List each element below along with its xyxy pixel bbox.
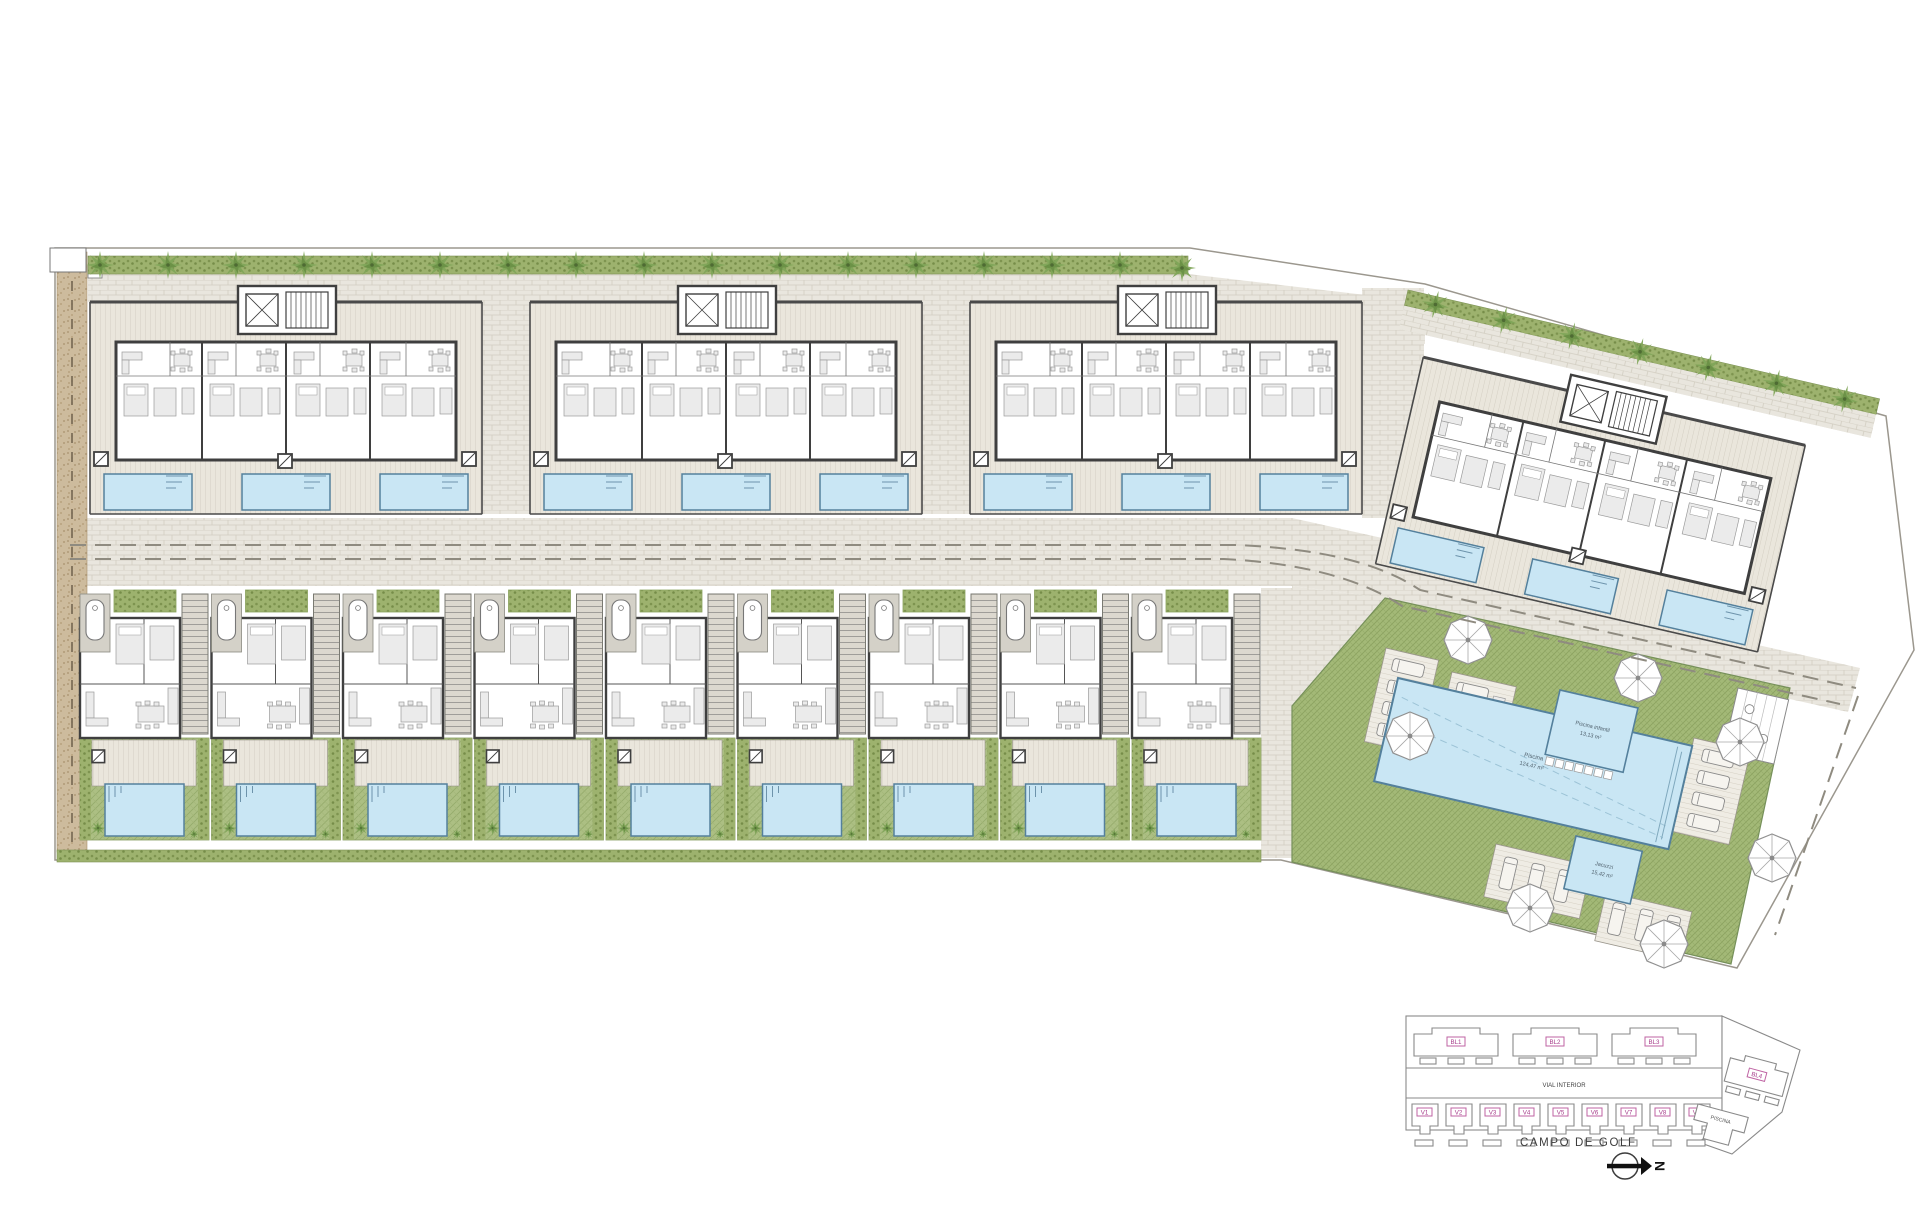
villa-v1 (80, 590, 209, 840)
key-bl3-label: BL3 (1648, 1039, 1660, 1046)
villa-v8 (1001, 590, 1130, 840)
utility-box (50, 248, 86, 272)
villa-row (57, 590, 1261, 862)
campo-de-golf-label: CAMPO DE GOLF (1520, 1137, 1637, 1149)
villa-v6 (738, 590, 867, 840)
block-bl2 (530, 286, 922, 514)
villa-v7 (869, 590, 998, 840)
key-v8: V8 (1659, 1110, 1667, 1117)
key-bl1-label: BL1 (1450, 1039, 1462, 1046)
floor-plan-canvas: Piscina 124,47 m² Piscina infantil 13,13… (0, 0, 1920, 1224)
key-v6: V6 (1591, 1110, 1599, 1117)
site-plan-page: Piscina 124,47 m² Piscina infantil 13,13… (0, 0, 1920, 1224)
key-plan: BL1 BL2 BL3 VIAL INTERIOR V1 V2 V3 V4 V5… (1406, 1016, 1800, 1179)
north-label: N (1652, 1161, 1668, 1171)
key-v5: V5 (1557, 1110, 1565, 1117)
key-v2: V2 (1455, 1110, 1463, 1117)
block-bl3 (970, 286, 1362, 514)
key-v7: V7 (1625, 1110, 1633, 1117)
key-v1: V1 (1421, 1110, 1429, 1117)
north-arrow: N (1607, 1153, 1668, 1179)
south-hedge (57, 850, 1261, 862)
villa-v4 (475, 590, 604, 840)
villa-v3 (343, 590, 472, 840)
key-road-label: VIAL INTERIOR (1542, 1083, 1586, 1089)
road-surface (57, 518, 1292, 586)
key-v4: V4 (1523, 1110, 1531, 1117)
villa-v2 (212, 590, 341, 840)
key-v3: V3 (1489, 1110, 1497, 1117)
villa-v9 (1132, 590, 1261, 840)
key-block-pools (1420, 1058, 1690, 1064)
block-bl1 (90, 286, 482, 514)
key-bl2-label: BL2 (1549, 1039, 1561, 1046)
villa-v5 (606, 590, 735, 840)
